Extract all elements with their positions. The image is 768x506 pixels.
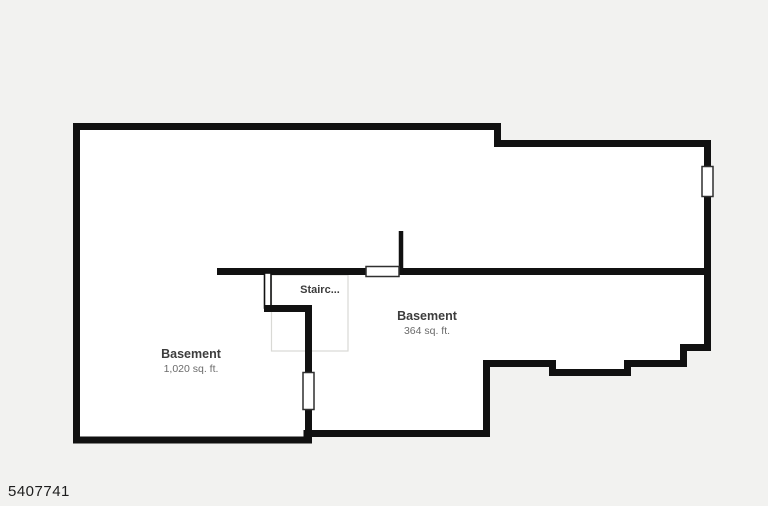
room-area: 364 sq. ft.	[377, 326, 477, 338]
window-right-wall	[702, 167, 713, 197]
floorplan-drawing	[0, 0, 768, 506]
floor-area	[77, 127, 708, 441]
staircase-thin-wall	[265, 273, 272, 308]
staircase-label: Stairc...	[292, 284, 348, 296]
window-left-room	[303, 373, 314, 410]
window-interior-wall	[366, 267, 399, 277]
room-name: Basement	[141, 347, 241, 361]
room-label-basement-left: Basement 1,020 sq. ft.	[141, 347, 241, 376]
floorplan-page: Stairc... Basement 1,020 sq. ft. Basemen…	[0, 0, 768, 506]
room-area: 1,020 sq. ft.	[141, 364, 241, 376]
room-label-basement-right: Basement 364 sq. ft.	[377, 309, 477, 338]
room-name: Basement	[377, 309, 477, 323]
plan-id-label: 5407741	[8, 483, 70, 500]
